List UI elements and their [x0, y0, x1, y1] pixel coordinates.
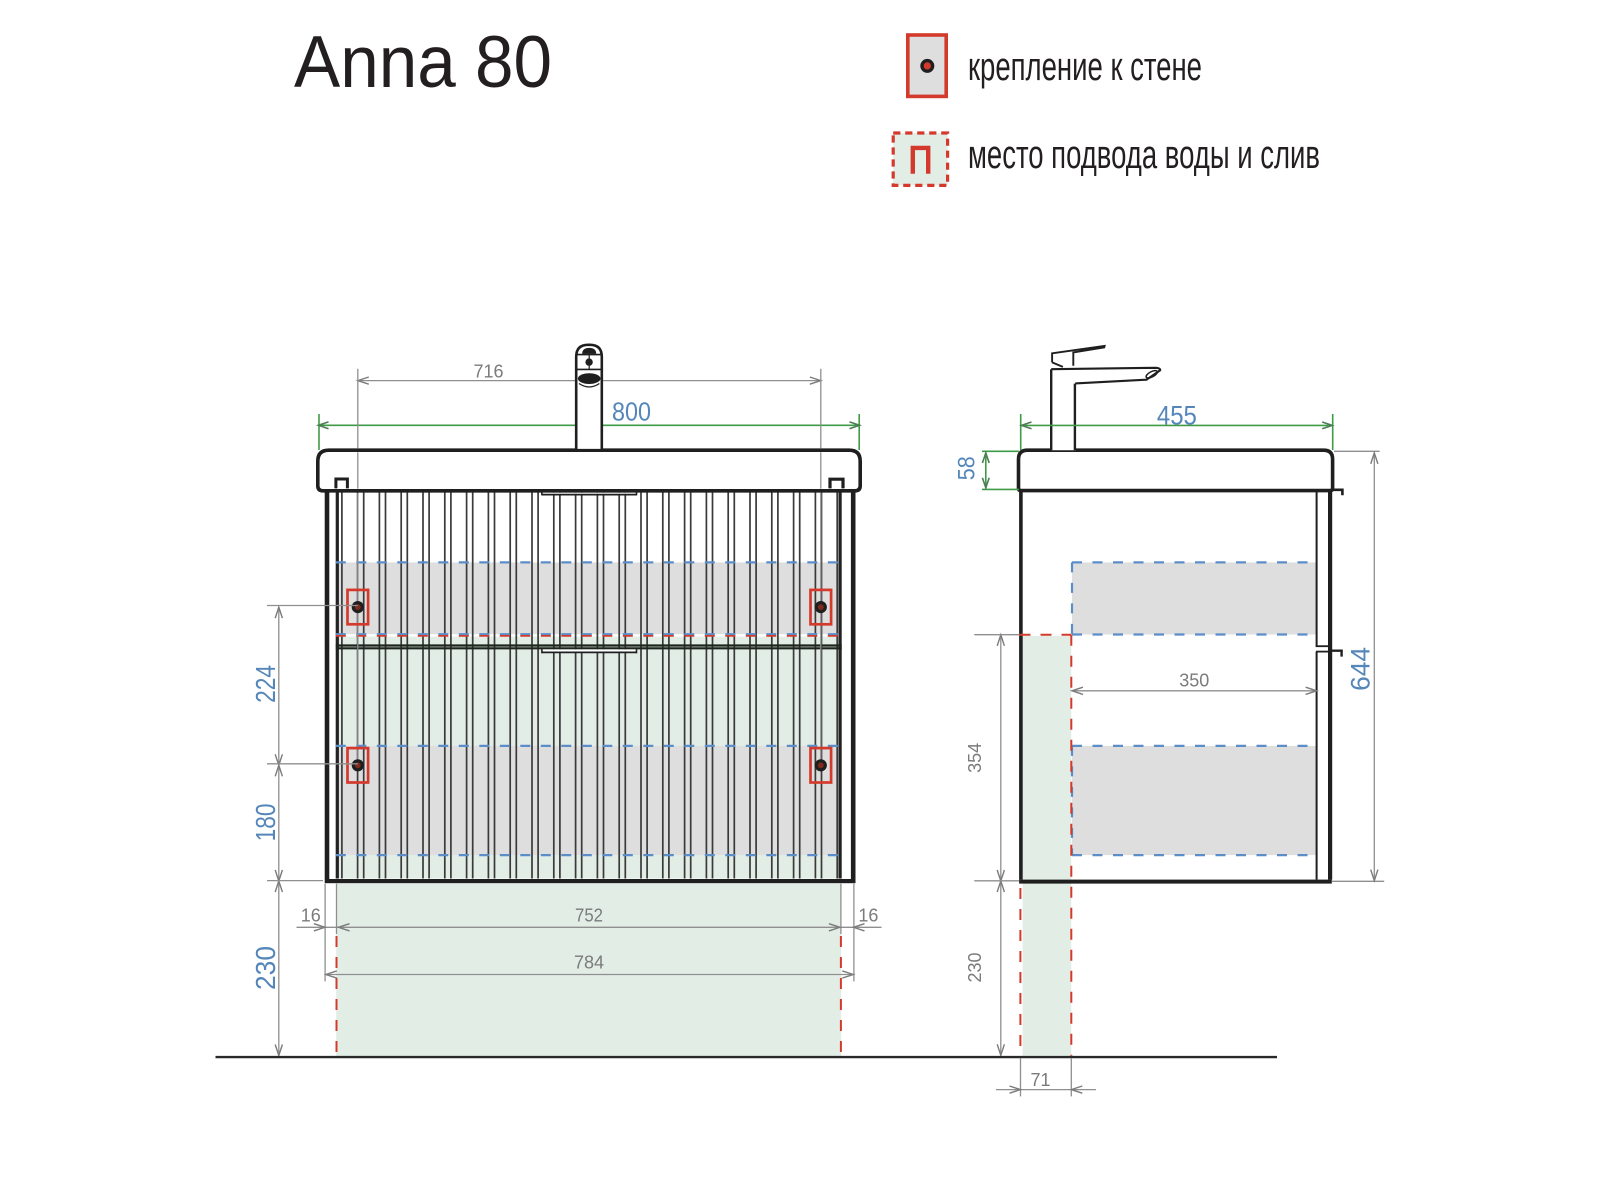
svg-text:180: 180 — [250, 803, 281, 841]
svg-text:58: 58 — [954, 456, 981, 480]
svg-text:230: 230 — [965, 952, 985, 982]
svg-text:350: 350 — [1179, 670, 1209, 690]
svg-text:71: 71 — [1030, 1070, 1050, 1090]
svg-text:224: 224 — [250, 665, 281, 703]
svg-text:752: 752 — [575, 906, 603, 926]
svg-text:230: 230 — [250, 946, 281, 990]
svg-text:644: 644 — [1346, 647, 1376, 691]
svg-text:716: 716 — [473, 362, 503, 382]
svg-text:784: 784 — [574, 952, 604, 972]
svg-text:455: 455 — [1157, 400, 1197, 430]
svg-text:место подвода воды и слив: место подвода воды и слив — [968, 133, 1320, 177]
svg-text:800: 800 — [612, 397, 651, 427]
svg-text:16: 16 — [301, 906, 321, 926]
svg-text:Anna 80: Anna 80 — [294, 22, 552, 103]
svg-text:крепление к стене: крепление к стене — [968, 45, 1202, 89]
svg-text:16: 16 — [858, 906, 878, 926]
svg-text:354: 354 — [965, 743, 985, 773]
